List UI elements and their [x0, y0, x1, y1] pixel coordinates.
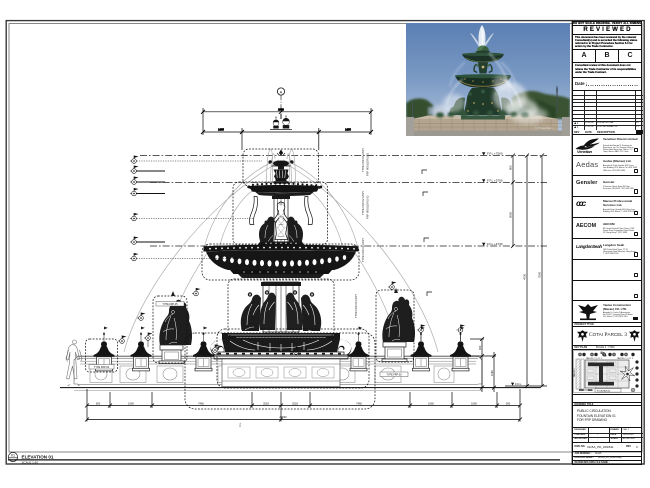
svg-text:ELEVATION 01: ELEVATION 01: [22, 454, 54, 459]
svg-text:PARCEL 1: PARCEL 1: [573, 367, 576, 377]
svg-text:2518: 2518: [292, 401, 298, 405]
svg-text:TYPE FRP-01 ASSY: TYPE FRP-01 ASSY: [361, 148, 365, 172]
svg-text:F.F.L +4730: F.F.L +4730: [487, 242, 503, 246]
svg-text:TYPE FRP-05: TYPE FRP-05: [162, 303, 178, 306]
svg-text:F.F.L +7500: F.F.L +7500: [487, 152, 503, 156]
svg-text:TYPE FRP-04 ASSY: TYPE FRP-04 ASSY: [354, 294, 358, 318]
svg-text:2990: 2990: [278, 107, 284, 111]
svg-text:1495: 1495: [218, 128, 224, 132]
svg-text:7500: 7500: [538, 271, 542, 278]
svg-text:1060: 1060: [128, 401, 134, 405]
svg-text:TYPE FRP-06: TYPE FRP-06: [94, 366, 110, 369]
svg-text:7460: 7460: [356, 401, 362, 405]
svg-text:1060: 1060: [471, 401, 477, 405]
svg-text:F.F.L.: F.F.L.: [515, 382, 522, 386]
svg-text:FRP MOULDING 01: FRP MOULDING 01: [366, 152, 370, 176]
svg-text:500: 500: [506, 401, 511, 405]
svg-text:21530: 21530: [279, 415, 287, 419]
svg-text:A: A: [280, 89, 283, 94]
svg-text:900: 900: [509, 165, 513, 170]
svg-text:900: 900: [478, 345, 482, 350]
svg-text:© PhotoParis: © PhotoParis: [535, 126, 553, 130]
svg-text:F.F.L +5790: F.F.L +5790: [487, 179, 503, 183]
svg-text:C.L.: C.L.: [238, 422, 242, 427]
svg-text:PARCEL 1, LOT 2: PARCEL 1, LOT 2: [586, 357, 603, 360]
svg-text:2518: 2518: [263, 401, 269, 405]
svg-text:FRP MOULDING 02: FRP MOULDING 02: [366, 195, 370, 219]
svg-text:1060: 1060: [490, 370, 494, 376]
svg-text:TYPE FRP-03 ASSY: TYPE FRP-03 ASSY: [361, 238, 365, 262]
svg-text:7460: 7460: [198, 401, 204, 405]
svg-text:4730: 4730: [523, 273, 527, 280]
svg-text:1495: 1495: [345, 128, 351, 132]
svg-text:Venetian: Venetian: [577, 148, 593, 152]
svg-text:TYPE FRP-02 ASSY: TYPE FRP-02 ASSY: [361, 191, 365, 215]
svg-text:2060: 2060: [509, 211, 513, 218]
svg-text:TYPE FRP-05: TYPE FRP-05: [386, 374, 402, 377]
svg-text:1060: 1060: [428, 401, 434, 405]
svg-text:FOUNTAIN 01: FOUNTAIN 01: [597, 390, 611, 393]
svg-text:PARCEL 1, LOT 3: PARCEL 1, LOT 3: [617, 357, 634, 360]
svg-text:01: 01: [11, 454, 15, 458]
svg-text:500: 500: [96, 401, 101, 405]
svg-text:SCALE 1:50: SCALE 1:50: [22, 461, 39, 465]
